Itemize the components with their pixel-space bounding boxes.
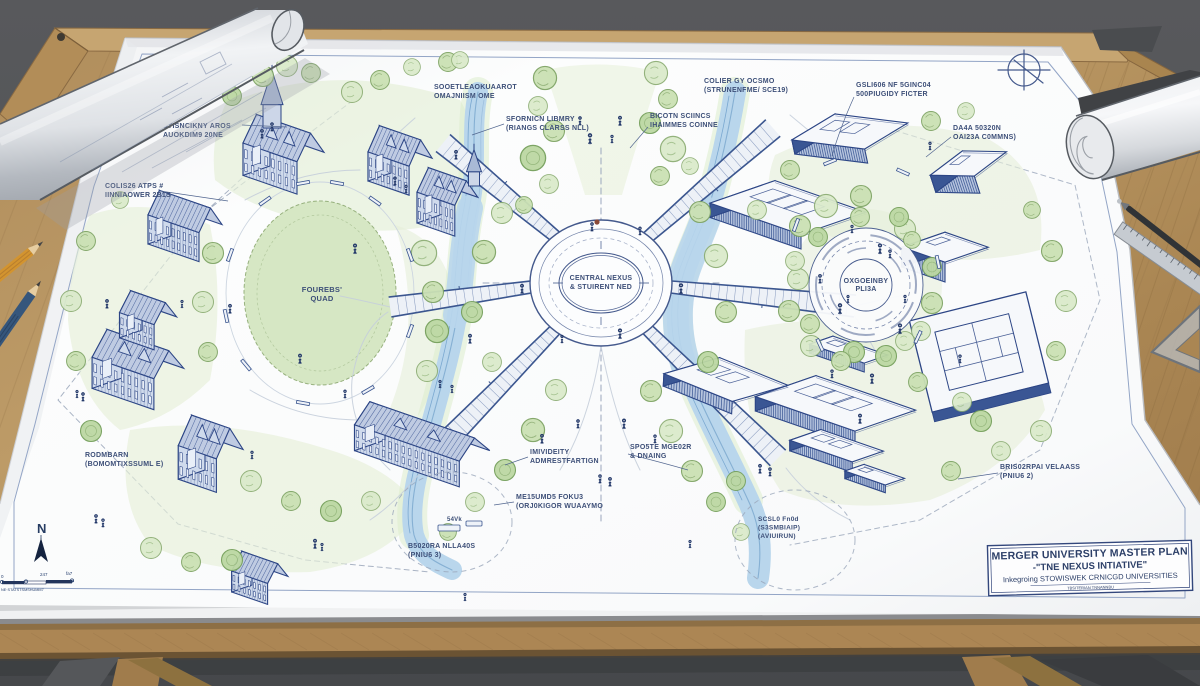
svg-text:& STUIRENT NED: & STUIRENT NED: [570, 284, 632, 291]
svg-text:N: N: [37, 521, 46, 536]
svg-text:(STRUNENFME/ SCE19): (STRUNENFME/ SCE19): [704, 87, 788, 94]
svg-text:BICOTN SCIINCS: BICOTN SCIINCS: [650, 113, 711, 120]
svg-text:ADMRESTFARTIGN: ADMRESTFARTIGN: [530, 458, 599, 465]
svg-text:(RIANGS CLARSS NLL): (RIANGS CLARSS NLL): [506, 125, 589, 132]
svg-text:OAI23A C0MMNS): OAI23A C0MMNS): [953, 134, 1016, 141]
svg-text:RODMBARN: RODMBARN: [85, 452, 129, 459]
svg-text:54Vk: 54Vk: [447, 517, 462, 523]
svg-text:ME15UMD5 FOKU3: ME15UMD5 FOKU3: [516, 494, 583, 501]
svg-text:(PNIU6 3): (PNIU6 3): [408, 552, 441, 559]
svg-text:fa7: fa7: [66, 571, 73, 576]
svg-text:SOOETLEAOKUAAROT: SOOETLEAOKUAAROT: [434, 84, 517, 91]
svg-text:OMAJNIISM OME: OMAJNIISM OME: [434, 93, 495, 100]
svg-text:DA4A 50320N: DA4A 50320N: [953, 125, 1001, 132]
svg-text:SFORNICN LIBMRY: SFORNICN LIBMRY: [506, 116, 575, 123]
svg-text:500PIUGIDY FICTER: 500PIUGIDY FICTER: [856, 91, 928, 98]
svg-text:FOUREBS': FOUREBS': [302, 285, 342, 294]
svg-text:(PNIU6 2): (PNIU6 2): [1000, 473, 1033, 480]
svg-text:OXGOEINBY: OXGOEINBY: [844, 278, 889, 285]
svg-text:(BOMOMTIXSSUML E): (BOMOMTIXSSUML E): [85, 461, 163, 468]
svg-text:(AVIUIRUN): (AVIUIRUN): [758, 533, 796, 540]
svg-text:QUAD: QUAD: [310, 294, 333, 303]
svg-text:& DNAING: & DNAING: [630, 453, 667, 460]
svg-text:SPO5TE MGE02R: SPO5TE MGE02R: [630, 444, 692, 451]
svg-text:B5020RA NLLA40S: B5020RA NLLA40S: [408, 543, 475, 550]
svg-text:247: 247: [40, 572, 48, 577]
svg-text:IMIVIDEITY: IMIVIDEITY: [530, 449, 570, 456]
svg-text:IHAIMMES COINNE: IHAIMMES COINNE: [650, 122, 718, 129]
svg-text:(S3SMBIAIP): (S3SMBIAIP): [758, 525, 800, 532]
svg-text:GSLI606 NF 5GINC04: GSLI606 NF 5GINC04: [856, 82, 931, 89]
svg-text:SCSL0 Fn0d: SCSL0 Fn0d: [758, 516, 799, 523]
svg-text:CENTRAL NEXUS: CENTRAL NEXUS: [570, 275, 633, 282]
svg-text:BRIS02RPAI VELAASS: BRIS02RPAI VELAASS: [1000, 464, 1080, 471]
svg-text:NE·STATSTSMSHUMM7: NE·STATSTSMSHUMM7: [1, 588, 44, 592]
svg-text:PLI3A: PLI3A: [855, 286, 876, 293]
svg-text:(ORJ0KIGOR WUAAYMO: (ORJ0KIGOR WUAAYMO: [516, 503, 603, 510]
svg-text:COLIER GY OCSMO: COLIER GY OCSMO: [704, 78, 775, 85]
